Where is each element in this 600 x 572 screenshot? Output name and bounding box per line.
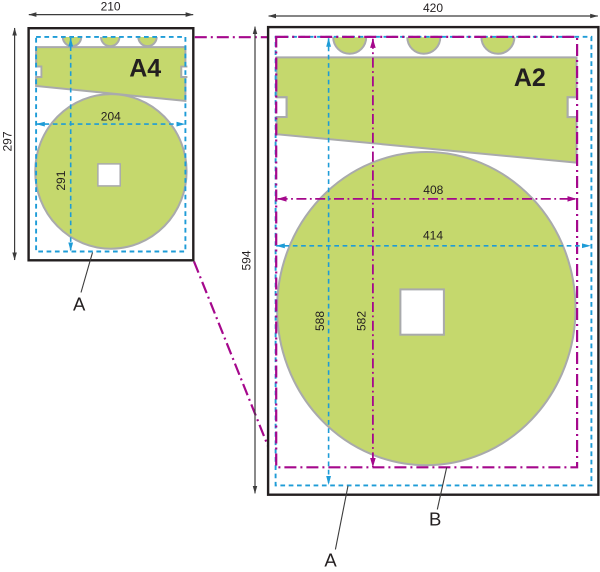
svg-text:594: 594 [240, 250, 254, 270]
svg-text:420: 420 [423, 1, 443, 15]
svg-text:A: A [324, 550, 337, 571]
svg-text:210: 210 [101, 0, 121, 13]
svg-text:291: 291 [54, 170, 68, 190]
svg-text:588: 588 [313, 311, 327, 331]
svg-text:A: A [73, 294, 86, 315]
svg-text:204: 204 [101, 109, 121, 123]
svg-text:A4: A4 [129, 55, 161, 83]
svg-text:414: 414 [423, 229, 443, 243]
svg-text:582: 582 [355, 311, 369, 331]
svg-text:408: 408 [423, 183, 443, 197]
svg-text:297: 297 [0, 131, 14, 151]
svg-text:B: B [429, 509, 441, 530]
svg-text:A2: A2 [514, 64, 546, 92]
